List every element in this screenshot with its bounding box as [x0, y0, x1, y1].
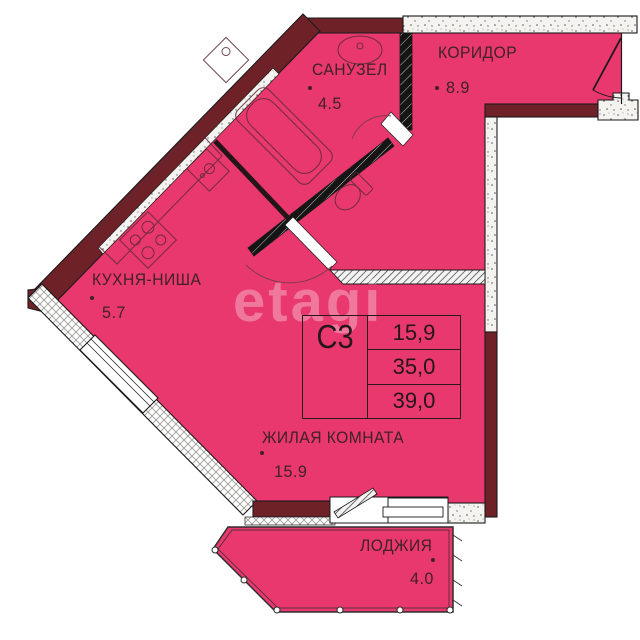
- wall-bathroom-corridor: [400, 33, 412, 130]
- room-area-lodzhiya: 4.0: [410, 569, 434, 589]
- unit-type-cell: С3: [303, 316, 368, 418]
- room-label-sanuzel: САНУЗЕЛ: [312, 60, 388, 80]
- room-label-kuhnya: КУХНЯ-НИША: [92, 270, 201, 290]
- washing-machine-icon: [203, 37, 248, 82]
- loggia-edge-ticks: [453, 535, 462, 606]
- leader-dot-koridor: [435, 86, 439, 90]
- total-area-value: 39,0: [368, 384, 460, 418]
- floor-plan: etagi САНУЗЕЛ 4.5 КОРИДОР 8.9 КУХНЯ-НИША…: [0, 0, 640, 640]
- wall-top-corridor: [403, 16, 637, 33]
- wall-bottom-parapet: [245, 517, 335, 525]
- wall-corridor-bottom: [485, 104, 598, 117]
- unit-areas-column: 15,9 35,0 39,0: [368, 316, 460, 418]
- room-label-lodzhiya: ЛОДЖИЯ: [360, 536, 432, 556]
- wall-bottom-right-block: [448, 503, 485, 523]
- leader-dot-kuhnya: [90, 296, 94, 300]
- room-area-sanuzel: 4.5: [318, 94, 342, 114]
- leader-dot-lodzhiya: [431, 558, 435, 562]
- wall-right-upper: [485, 117, 497, 332]
- leader-dot-zhilaya: [260, 451, 264, 455]
- room-area-kuhnya: 5.7: [102, 303, 126, 323]
- room-label-koridor: КОРИДОР: [438, 43, 517, 63]
- loggia-window-inner: [383, 507, 443, 517]
- living-area-value: 15,9: [368, 316, 460, 349]
- unit-info-box: С3 15,9 35,0 39,0: [302, 315, 461, 419]
- wall-bottom: [253, 501, 330, 517]
- apartment-area-value: 35,0: [368, 349, 460, 383]
- unit-type-label: С3: [316, 316, 353, 357]
- leader-dot-sanuzel: [308, 86, 312, 90]
- wall-right-lower: [485, 332, 497, 517]
- room-area-zhilaya: 15.9: [274, 462, 307, 482]
- room-area-koridor: 8.9: [446, 78, 470, 98]
- room-label-zhilaya: ЖИЛАЯ КОМНАТА: [262, 428, 404, 448]
